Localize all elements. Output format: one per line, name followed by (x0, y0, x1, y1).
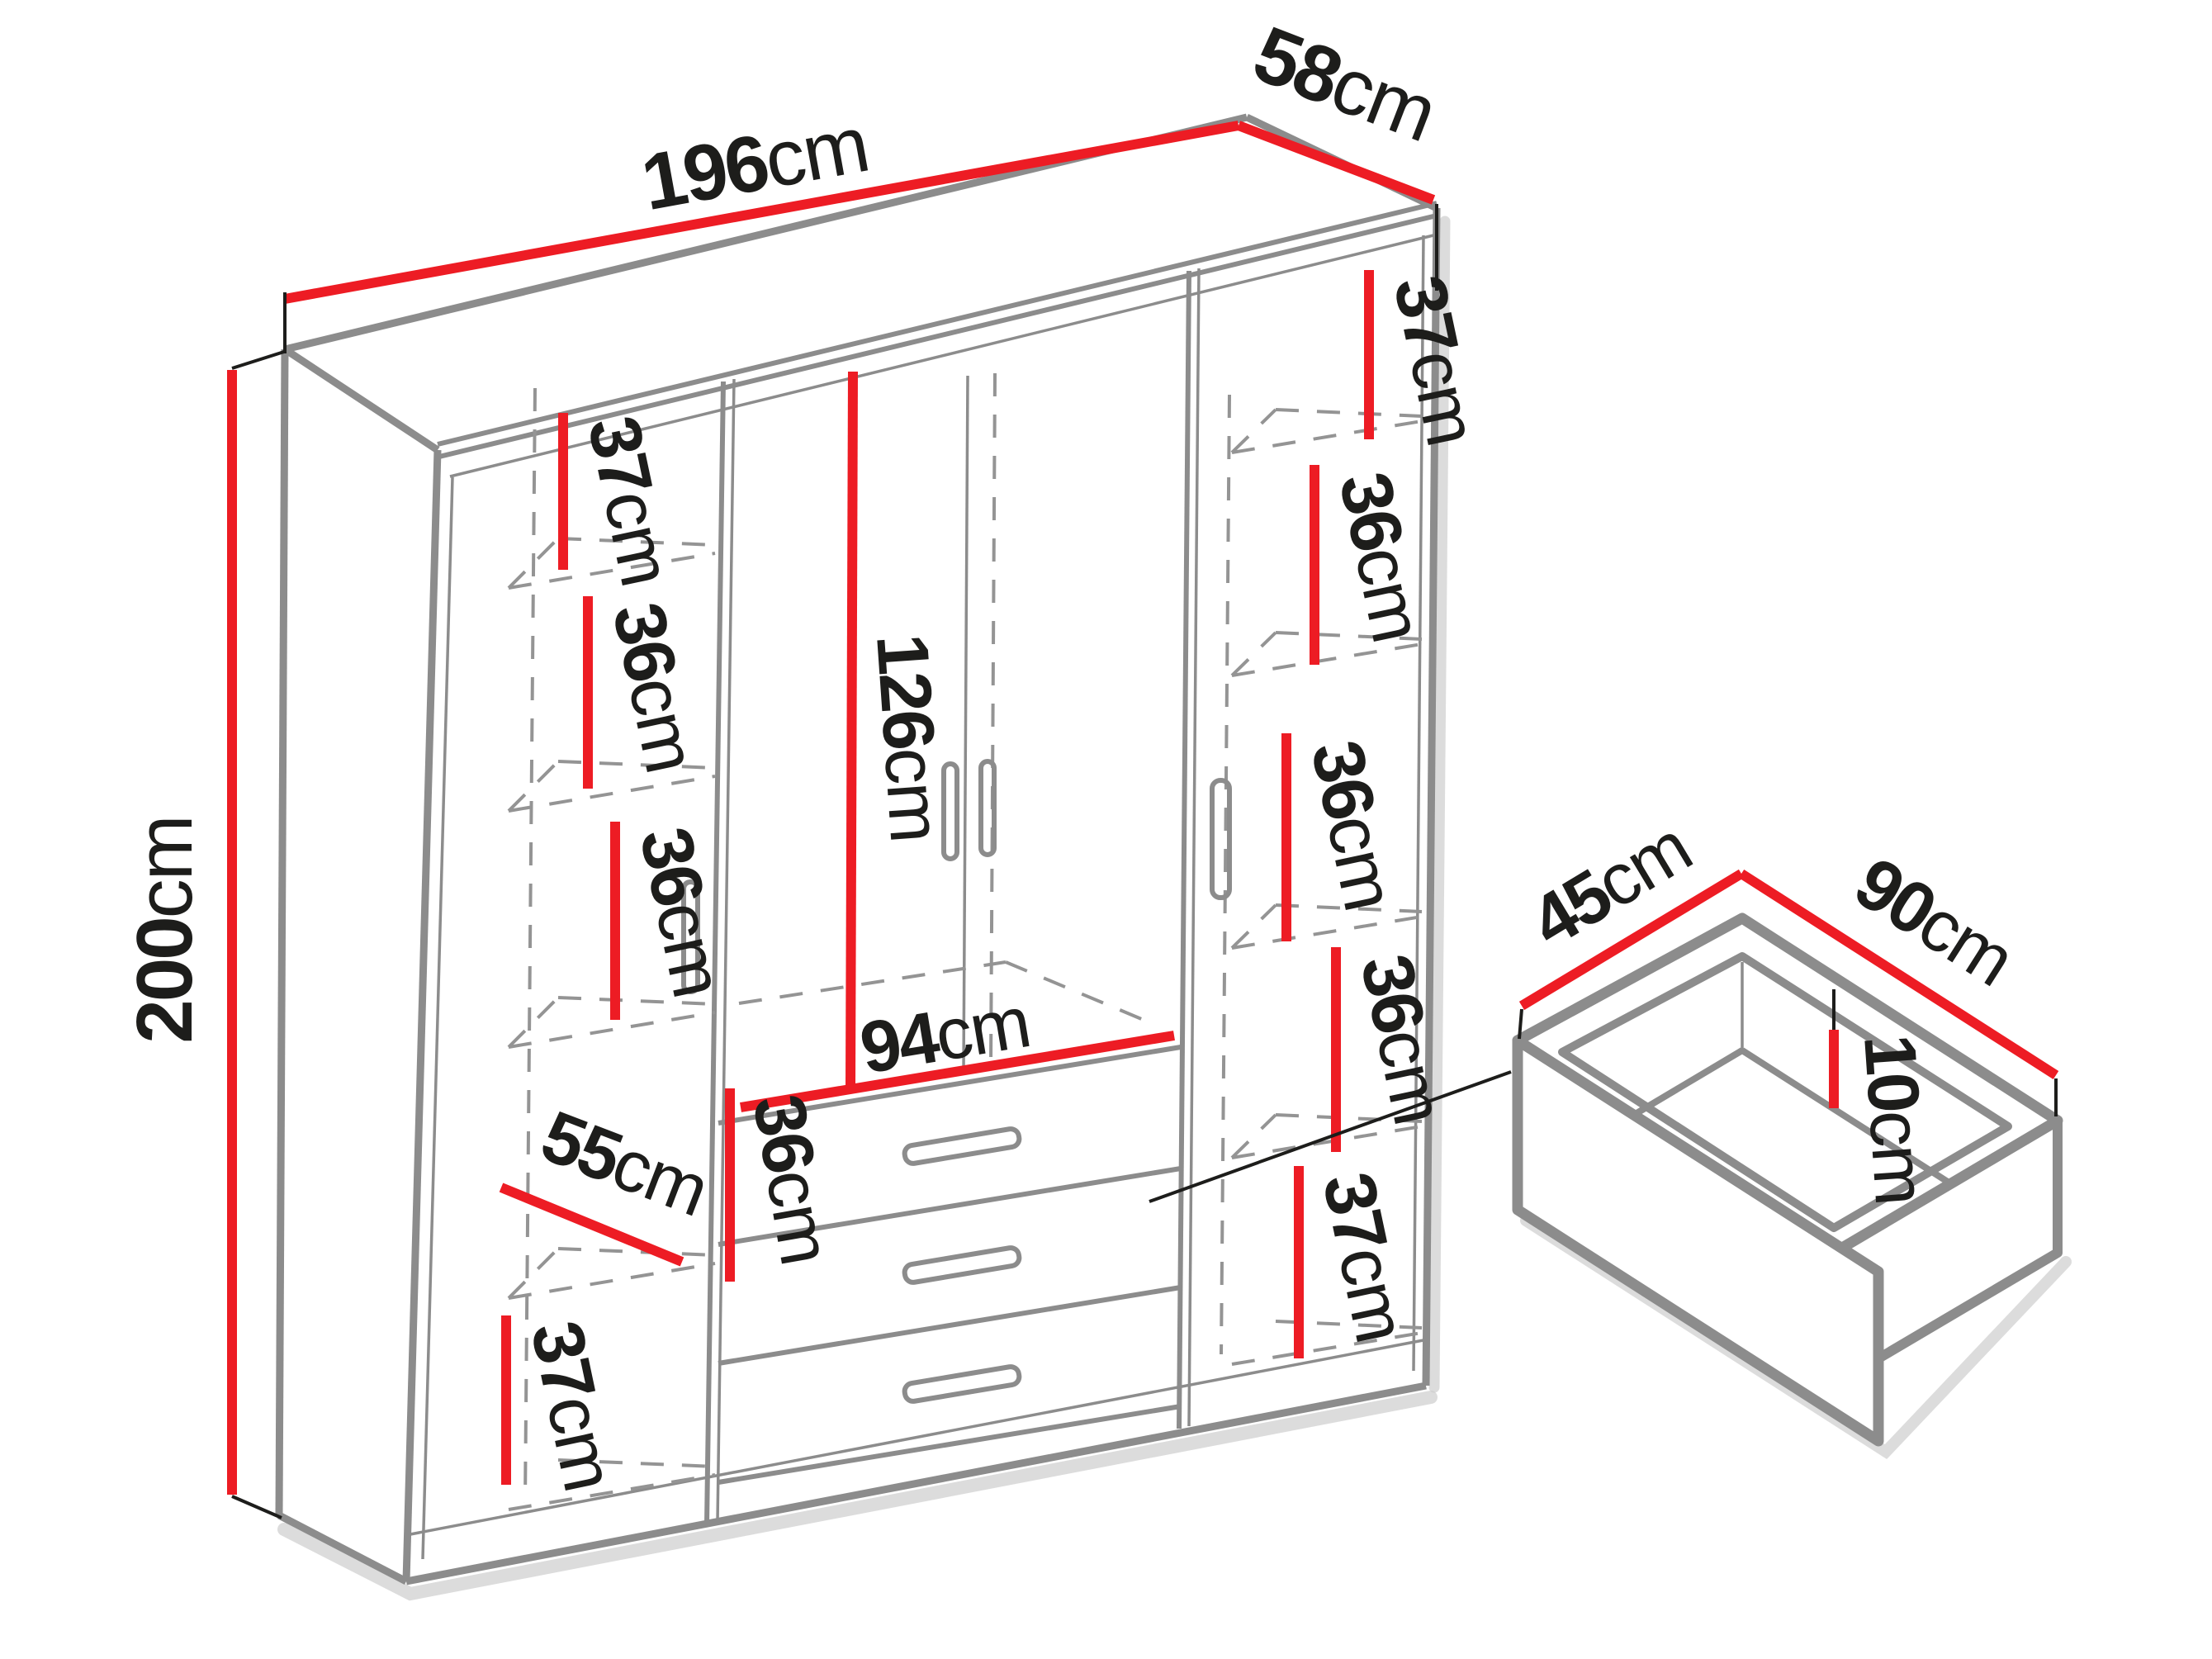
dim-line-door-height-126 (850, 372, 853, 1088)
label-drawer-depth-45: 45cm (1517, 806, 1704, 964)
label-door-height-126: 126cm (861, 631, 957, 843)
wardrobe-body (279, 117, 1437, 1581)
label-height-200: 200cm (121, 816, 209, 1043)
wardrobe-fill (279, 117, 1437, 1581)
diagram-canvas: 196cm 58cm 200cm 37cm 36cm 36cm 36cm 37c… (0, 0, 2212, 1659)
tick-200-bottom (232, 1496, 282, 1518)
furniture-dimension-diagram: 196cm 58cm 200cm 37cm 36cm 36cm 36cm 37c… (0, 0, 2212, 1659)
label-drawer-height-10: 10cm (1849, 1031, 1942, 1206)
label-width-196: 196cm (635, 100, 874, 227)
label-drawer-width-90: 90cm (1841, 841, 2028, 1002)
tick-200-top (232, 352, 284, 368)
